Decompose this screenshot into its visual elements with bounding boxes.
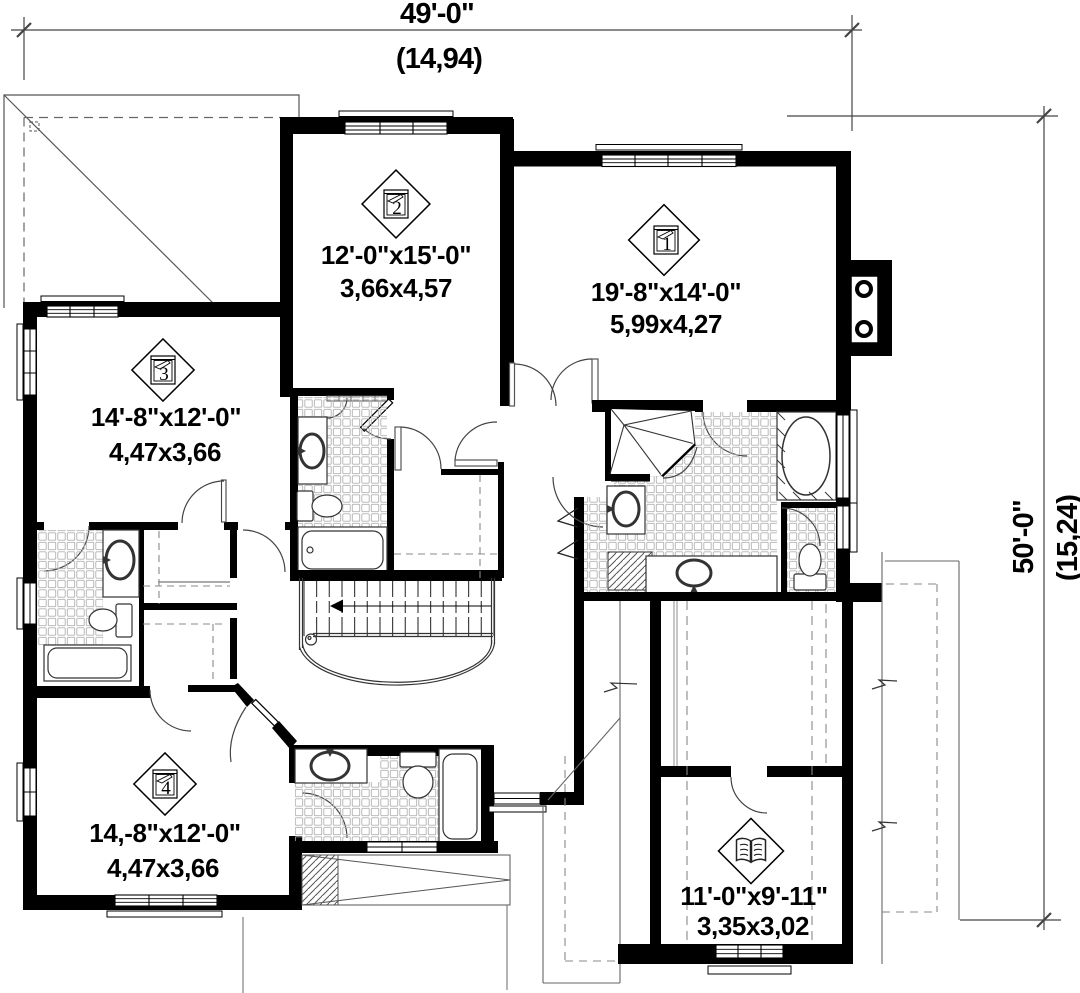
svg-text:49'-0": 49'-0": [400, 0, 474, 30]
svg-text:14,-8"x12'-0": 14,-8"x12'-0": [89, 818, 240, 848]
svg-text:14'-8"x12'-0": 14'-8"x12'-0": [91, 402, 241, 432]
svg-text:12'-0"x15'-0": 12'-0"x15'-0": [321, 240, 471, 270]
svg-text:19'-8"x14'-0": 19'-8"x14'-0": [591, 277, 741, 307]
svg-text:3,35x3,02: 3,35x3,02: [697, 911, 809, 941]
svg-text:2: 2: [392, 198, 402, 219]
svg-text:3: 3: [159, 364, 169, 385]
svg-text:4,47x3,66: 4,47x3,66: [109, 437, 221, 467]
svg-text:(14,94): (14,94): [396, 43, 482, 75]
svg-text:(15,24): (15,24): [1052, 495, 1080, 581]
svg-text:3,66x4,57: 3,66x4,57: [340, 273, 452, 303]
svg-text:5,99x4,27: 5,99x4,27: [610, 309, 722, 339]
svg-text:4,47x3,66: 4,47x3,66: [107, 853, 219, 883]
svg-text:11'-0"x9'-11": 11'-0"x9'-11": [680, 881, 828, 911]
svg-text:1: 1: [662, 234, 672, 255]
svg-text:4: 4: [161, 778, 171, 799]
svg-text:50'-0": 50'-0": [1008, 500, 1040, 574]
